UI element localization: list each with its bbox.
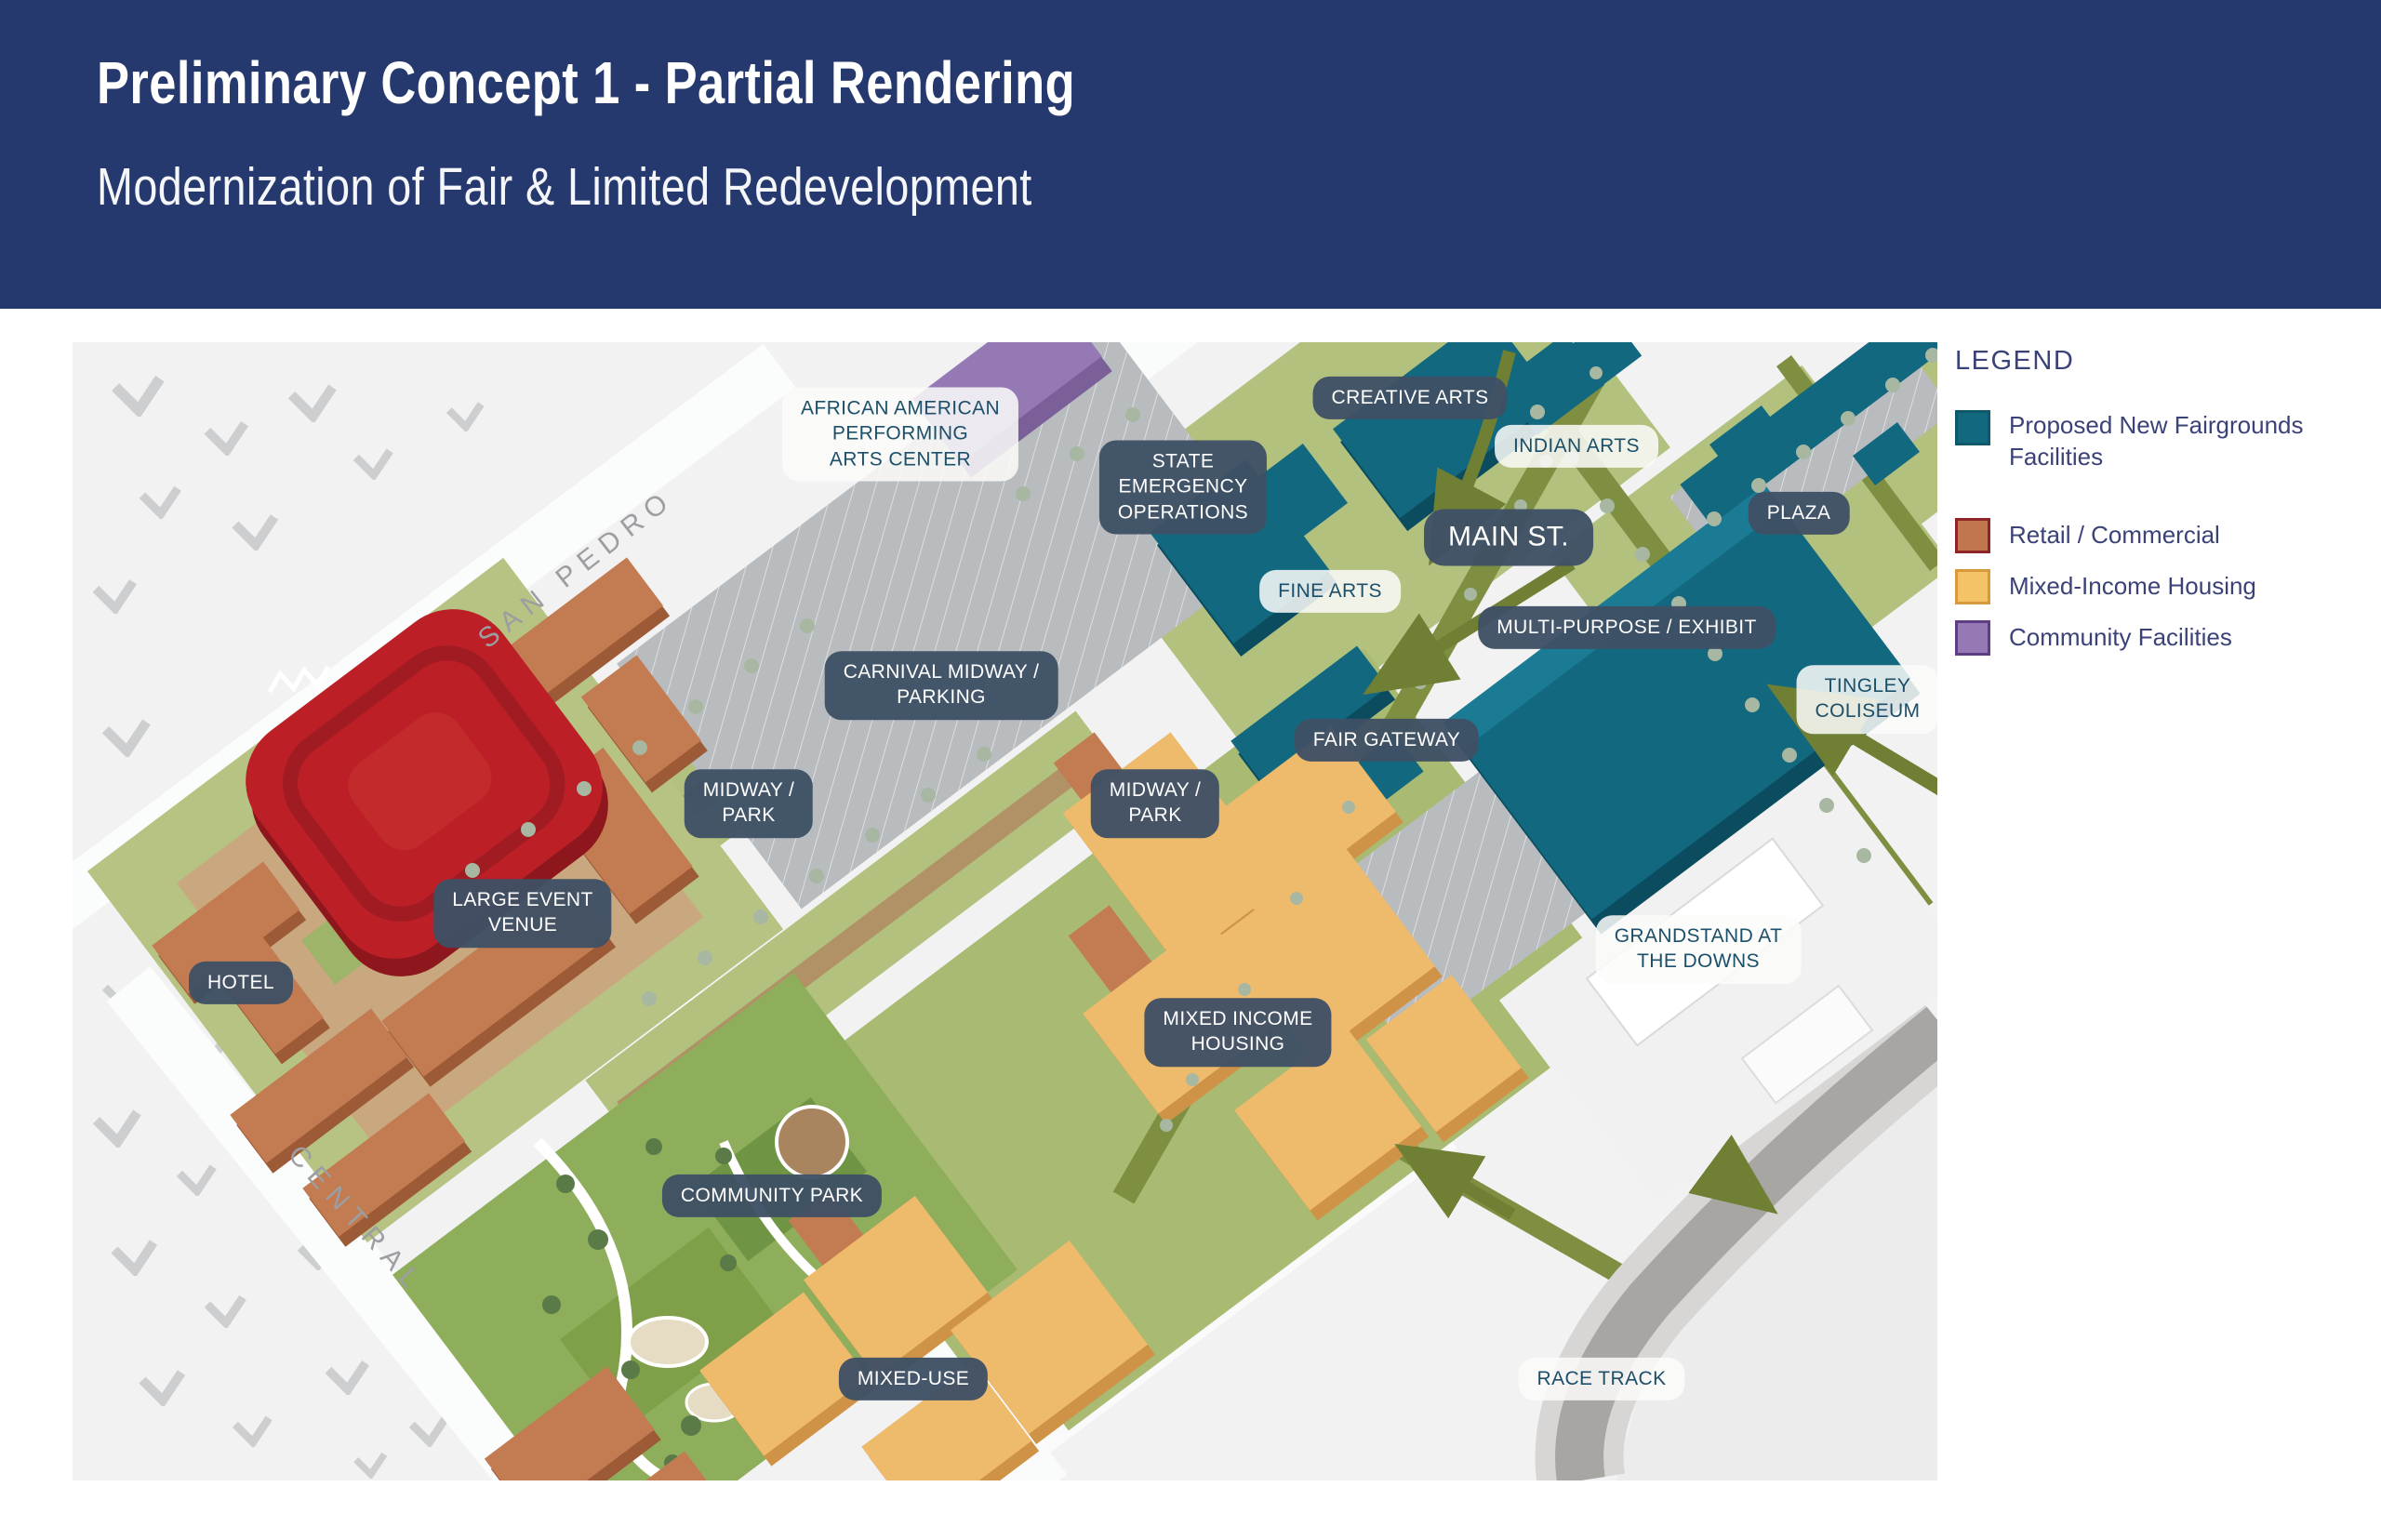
header-banner: Preliminary Concept 1 - Partial Renderin… [0,0,2381,309]
map-label-fair-gateway: FAIR GATEWAY [1295,719,1479,762]
map-label-carnival-midway-parking: CARNIVAL MIDWAY / PARKING [825,651,1058,720]
legend-item-community-facilities: Community Facilities [1955,620,2374,656]
legend-label-retail-commercial: Retail / Commercial [2009,520,2220,551]
legend-item-retail-commercial: Retail / Commercial [1955,518,2374,553]
map-label-mixed-use: MIXED-USE [839,1358,988,1401]
legend-title: LEGEND [1955,346,2374,377]
site-plan-rendering: CREATIVE ARTS INDIAN ARTS AFRICAN AMERIC… [73,342,1937,1480]
map-label-midway-park-west: MIDWAY / PARK [685,769,813,838]
map-label-midway-park-east: MIDWAY / PARK [1091,769,1219,838]
legend-label-community-facilities: Community Facilities [2009,622,2232,654]
legend-swatch-proposed-fairgrounds [1955,410,1990,445]
legend: LEGEND Proposed New Fairgrounds Faciliti… [1955,346,2374,671]
map-label-indian-arts: INDIAN ARTS [1495,425,1658,468]
map-label-grandstand-at-the-downs: GRANDSTAND AT THE DOWNS [1596,915,1802,984]
page-subtitle: Modernization of Fair & Limited Redevelo… [97,156,1032,218]
map-label-multi-purpose-exhibit: MULTI-PURPOSE / EXHIBIT [1478,606,1776,649]
map-label-african-american-performing-arts-center: AFRICAN AMERICAN PERFORMING ARTS CENTER [782,388,1018,482]
map-label-creative-arts: CREATIVE ARTS [1313,377,1508,419]
map-label-main-st: MAIN ST. [1424,510,1593,566]
map-label-hotel: HOTEL [189,962,293,1004]
map-label-fine-arts: FINE ARTS [1259,570,1401,613]
map-label-state-emergency-operations: STATE EMERGENCY OPERATIONS [1099,441,1267,535]
map-label-large-event-venue: LARGE EVENT VENUE [433,879,611,948]
map-label-race-track: RACE TRACK [1519,1358,1685,1401]
legend-swatch-community-facilities [1955,620,1990,656]
map-label-community-park: COMMUNITY PARK [662,1175,882,1217]
map-label-mixed-income-housing: MIXED INCOME HOUSING [1144,998,1331,1067]
page: Preliminary Concept 1 - Partial Renderin… [0,0,2381,1540]
legend-item-mixed-income-housing: Mixed-Income Housing [1955,569,2374,604]
map-label-tingley-coliseum: TINGLEY COLISEUM [1797,665,1937,734]
page-title: Preliminary Concept 1 - Partial Renderin… [97,48,1075,117]
site-plan-art [73,342,1937,1480]
legend-item-proposed-fairgrounds: Proposed New Fairgrounds Facilities [1955,410,2374,473]
legend-swatch-mixed-income-housing [1955,569,1990,604]
map-label-plaza: PLAZA [1749,492,1850,535]
legend-label-proposed-fairgrounds: Proposed New Fairgrounds Facilities [2009,410,2316,473]
legend-swatch-retail-commercial [1955,518,1990,553]
legend-label-mixed-income-housing: Mixed-Income Housing [2009,571,2256,603]
